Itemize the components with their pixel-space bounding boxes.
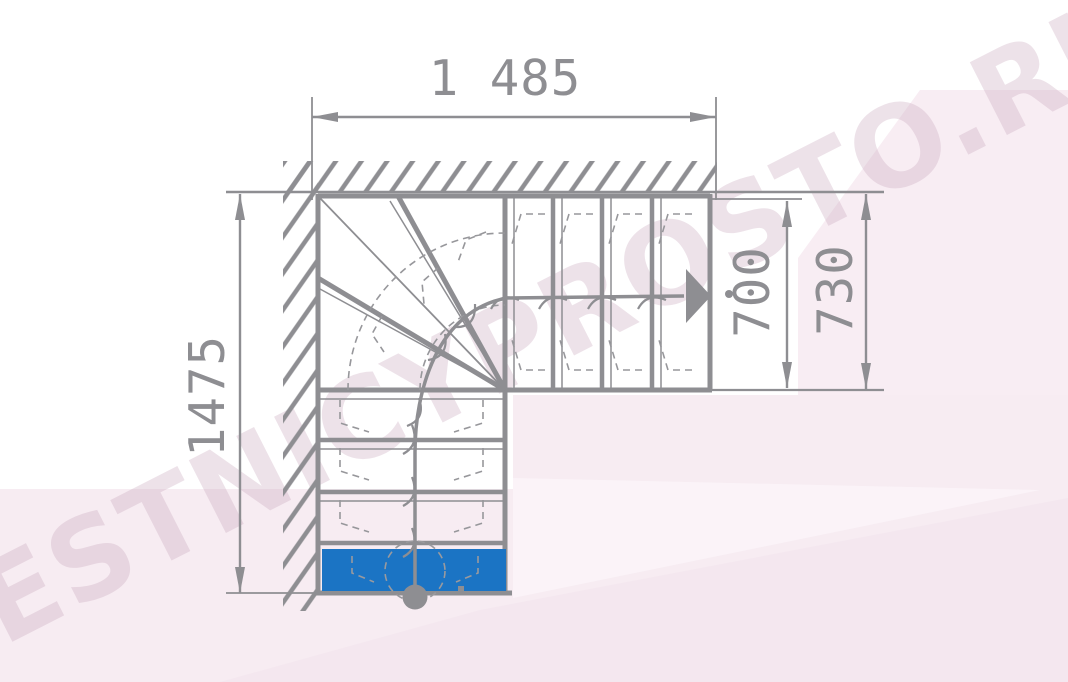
top-wall-hatch bbox=[283, 161, 717, 192]
arrowhead-up-icon bbox=[235, 194, 245, 220]
dimension-label-top: 1 485 bbox=[429, 50, 582, 107]
dimension-label-700: 700 bbox=[724, 246, 781, 338]
staircase-plan-canvas: LESTNICYPROSTO.RU bbox=[0, 0, 1068, 682]
plan-drawing: LESTNICYPROSTO.RU bbox=[0, 0, 1068, 682]
dimension-label-left: 1475 bbox=[179, 335, 236, 457]
arrowhead-left-icon bbox=[312, 112, 338, 122]
walk-start-marker-icon bbox=[403, 585, 428, 610]
arrowhead-down-icon bbox=[782, 362, 792, 388]
arrowhead-right-icon bbox=[690, 112, 716, 122]
walkline-small-dot bbox=[458, 586, 464, 591]
left-wall-hatch bbox=[283, 161, 318, 611]
dimension-label-730: 730 bbox=[807, 244, 864, 336]
